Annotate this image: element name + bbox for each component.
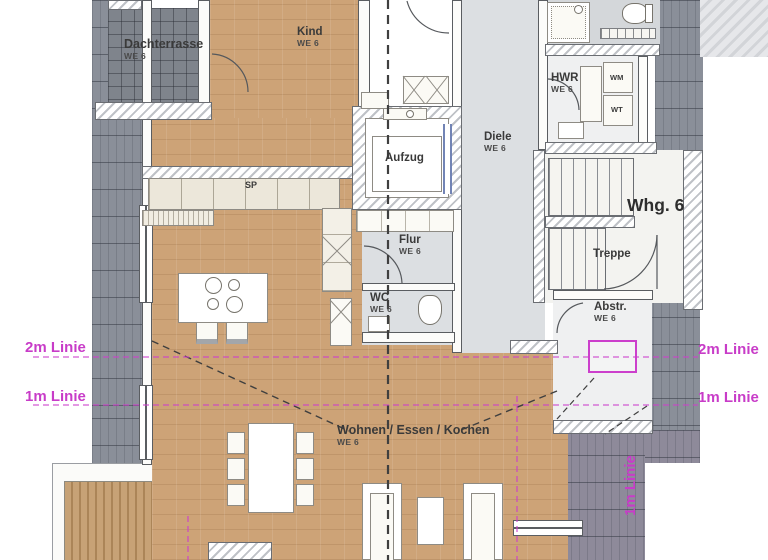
kind-side-table [361,92,389,109]
dining-chair-2 [227,458,245,480]
room-name: Kind [297,26,323,38]
hall-wardrobe [403,76,449,104]
dining-chair-5 [296,458,314,480]
dining-chair-6 [296,484,314,506]
wall-stair-left [533,150,545,303]
dining-table [248,423,294,513]
room-name: Aufzug [385,152,424,164]
room-name: WC [370,292,389,304]
wall-abstellraum-bottom [553,420,653,434]
wall-bottom-section [208,542,272,560]
sofa-right-cushion [471,493,495,560]
cooktop-burner-1 [205,277,222,294]
stairs-upper-flight [548,158,634,216]
dining-chair-3 [227,484,245,506]
room-unit: WE 6 [297,39,323,48]
room-label-wohnen: Wohnen / Essen / Kochen WE 6 [337,424,490,447]
washing-machine-tag: WM [610,73,623,82]
elevator-door [443,124,452,194]
room-name: Treppe [593,248,631,260]
toilet-bath-tank [645,4,653,23]
elevator-pulley [406,110,414,118]
roof-tiles-right-top [655,0,703,163]
wall-wc-bottom [362,332,455,343]
room-name: Abstr. [594,301,627,313]
dishwasher-tag: SP [245,180,257,190]
hwr-sink [558,122,584,139]
shower-drain [574,5,583,14]
toilet-wc [418,295,442,325]
room-unit: WE 6 [484,144,512,153]
wall-diele-bottom [510,340,558,354]
room-name: Diele [484,131,512,143]
hall-cabinet [356,210,454,232]
wc-sink [368,316,390,332]
room-name: HWR [551,72,578,84]
kitchen-lower-cabinet [330,298,352,346]
room-unit: WE 6 [594,314,627,323]
bath-radiator [600,28,656,39]
room-label-treppe: Treppe [593,248,631,261]
deck-planks [64,481,162,560]
room-name: Flur [399,234,421,246]
room-unit: WE 6 [551,85,578,94]
room-label-diele: Diele WE 6 [484,131,512,153]
kitchen-sink-counter [142,210,214,226]
bar-stool-1 [196,322,218,344]
room-unit: WE 6 [399,247,421,256]
kitchen-island [178,273,268,323]
wall-flur-wc-divider [362,283,455,291]
coffee-table [417,497,444,545]
room-unit: WE 6 [124,52,203,61]
line-1m-label-right: 1m Linie [698,389,759,406]
floor-diele [455,0,545,353]
cooktop-burner-4 [226,296,243,313]
window-living-left-lower [139,385,153,460]
room-label-hwr: HWR WE 6 [551,72,578,94]
wall-abstellraum-top [553,290,653,300]
floor-plan: Dachterrasse WE 6 Kind WE 6 HWR WE 6 Die… [0,0,768,560]
room-name: Dachterrasse [124,37,203,51]
elevator-counterweight [383,108,427,120]
wall-below-terrace [95,102,212,120]
dining-chair-4 [296,432,314,454]
roof-tiles-right-mid [645,290,700,435]
wall-stair-right-exterior [683,150,703,310]
room-name: Wohnen / Essen / Kochen [337,423,490,437]
wall-stair-mid [545,216,635,228]
dining-chair-1 [227,432,245,454]
wall-hwr-right [638,56,648,144]
room-unit: WE 6 [337,438,490,447]
room-label-aufzug: Aufzug [385,152,424,165]
line-1m-label-left: 1m Linie [25,388,86,405]
cooktop-burner-3 [207,298,219,310]
apartment-label: Whg. 6 [627,195,684,216]
room-label-flur: Flur WE 6 [399,234,421,256]
room-label-abstellraum: Abstr. WE 6 [594,301,627,323]
line-2m-label-right: 2m Linie [698,341,759,358]
wall-hwr-bottom [545,142,657,154]
wall-terrace-top [108,0,142,10]
skylight-marker [588,340,637,373]
room-unit: WE 6 [370,305,392,314]
wall-bath-bottom [545,44,660,56]
room-label-wc: WC WE 6 [370,292,392,314]
room-label-kind: Kind WE 6 [297,26,323,48]
floor-kind-extension [142,118,367,170]
window-living-bottom-right [513,520,583,536]
dryer-tag: WT [611,105,623,114]
bar-stool-2 [226,322,248,344]
line-2m-label-left: 2m Linie [25,339,86,356]
kitchen-tall-cabinets [322,208,352,292]
roof-hatch-top-right [700,0,768,57]
kitchen-counter [148,178,340,210]
sofa-left-cushion [370,493,394,560]
room-label-dachterrasse: Dachterrasse WE 6 [124,38,203,61]
cooktop-burner-2 [228,279,240,291]
line-1m-label-vertical-right: 1m Linie [622,455,639,516]
hwr-shelf [580,66,602,122]
